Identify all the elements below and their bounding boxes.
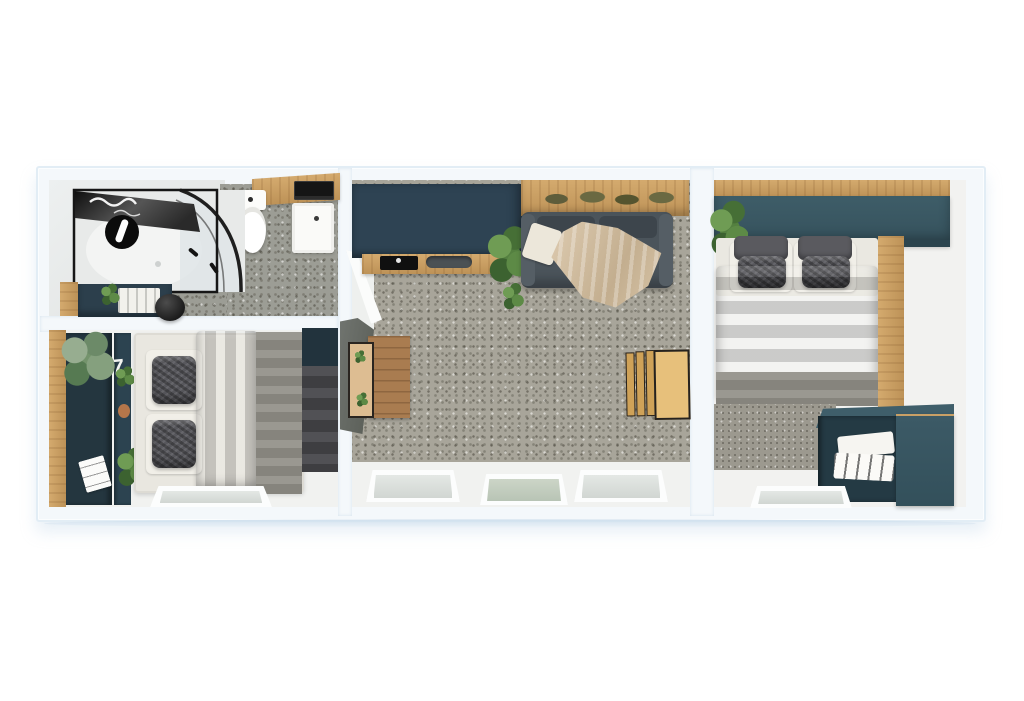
living-window-3 [574, 470, 668, 502]
sideboard-plant-small-1 [354, 350, 366, 364]
chair-slat [635, 351, 645, 416]
kitchen-plant-vine [502, 282, 524, 312]
bed-left-foot-throw [302, 366, 338, 472]
bedroom-right-top-trim [714, 180, 950, 197]
living-window-2 [480, 474, 568, 505]
bed-left-pillow-2 [152, 420, 196, 468]
bedroom-left-plant-small [114, 366, 136, 388]
bed-left-duvet [196, 331, 258, 495]
bathroom-plant [100, 283, 120, 307]
dried-plant-decor [540, 188, 678, 208]
sideboard-plant-small-2 [356, 392, 368, 408]
storage-unit-front-panel [896, 414, 954, 506]
bedroom-left-decor-pot [118, 404, 130, 418]
window-glass [487, 479, 561, 501]
bedroom-right-side-trim [878, 236, 904, 410]
storage-linens-2 [833, 452, 894, 481]
kitchen-faucet [396, 258, 401, 263]
window-glass [758, 491, 844, 504]
plan-drop-shadow [44, 519, 976, 528]
bathroom-towels [118, 288, 160, 313]
bathroom-stool [155, 294, 185, 321]
bedroom-left-plant-large [56, 330, 118, 388]
washbasin-faucet [314, 216, 319, 221]
bedroom-left-window [150, 486, 272, 507]
bedroom-right-window [750, 486, 852, 508]
shower-enclosure [72, 188, 247, 294]
living-window-1 [366, 470, 460, 502]
chair-panel [653, 349, 690, 420]
bed-left-runner [256, 332, 302, 494]
window-glass [160, 491, 263, 503]
sideboard-body [368, 336, 410, 418]
window-glass [374, 475, 453, 498]
folded-chairs [625, 349, 688, 416]
toilet-button [248, 197, 253, 202]
sofa-arm-right [659, 214, 673, 286]
bathroom-wood-trim [60, 282, 78, 316]
vanity-accessories [294, 181, 334, 200]
kitchen-hob-tray [426, 256, 472, 268]
washbasin [292, 203, 334, 253]
floorplan-render: 7 [0, 0, 1024, 701]
bedroom-left-corner-wardrobe [302, 328, 338, 366]
chair-slat [625, 352, 635, 416]
bed-left-pillow-1 [152, 356, 196, 404]
bed-right-runner [716, 372, 878, 406]
window-glass [582, 475, 661, 498]
